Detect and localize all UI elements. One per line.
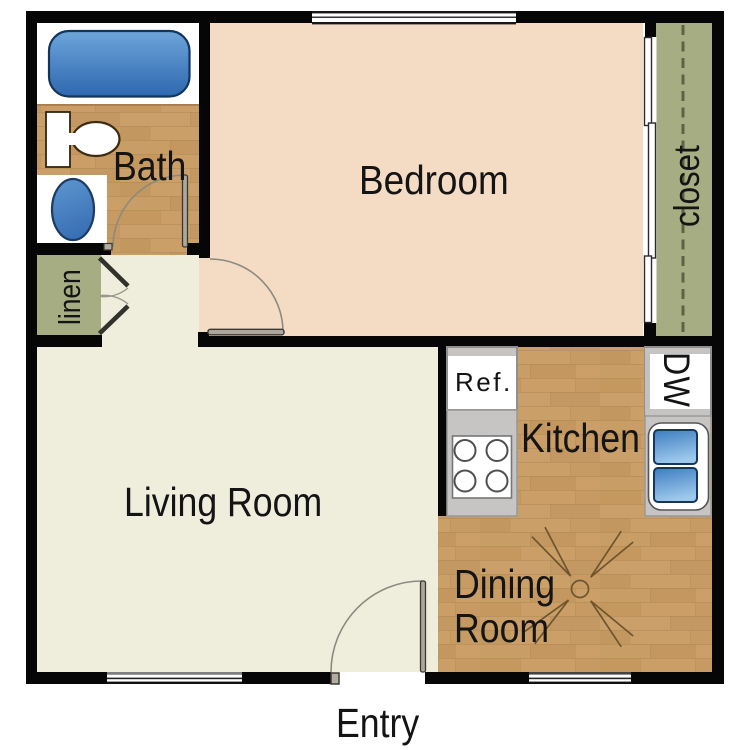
- svg-text:Bath: Bath: [113, 144, 186, 190]
- svg-text:Dining: Dining: [454, 562, 555, 608]
- svg-text:closet: closet: [667, 145, 708, 227]
- svg-text:Room: Room: [454, 606, 549, 652]
- svg-text:Kitchen: Kitchen: [521, 416, 640, 462]
- svg-text:Bedroom: Bedroom: [359, 158, 509, 203]
- svg-text:linen: linen: [53, 269, 87, 325]
- svg-text:Entry: Entry: [336, 701, 420, 747]
- svg-text:DW: DW: [655, 352, 696, 408]
- svg-text:Ref.: Ref.: [455, 367, 513, 397]
- svg-text:Living Room: Living Room: [124, 480, 322, 526]
